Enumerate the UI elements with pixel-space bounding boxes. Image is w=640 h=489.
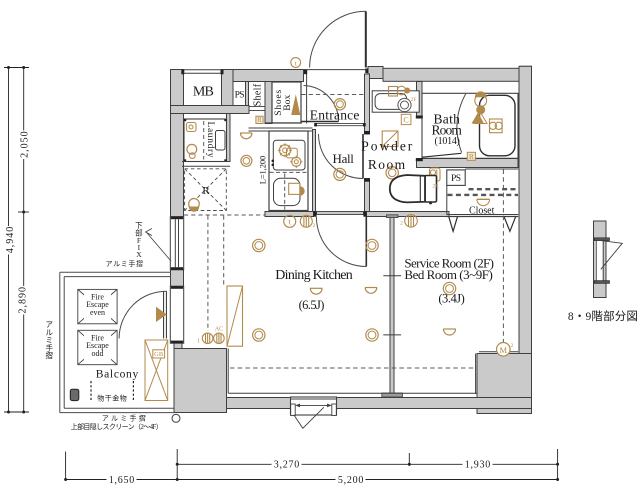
svg-text:Laundry: Laundry xyxy=(205,122,215,158)
svg-text:2: 2 xyxy=(400,221,403,227)
svg-text:t: t xyxy=(295,59,297,67)
svg-text:Closet: Closet xyxy=(469,205,495,216)
svg-text:2,890: 2,890 xyxy=(18,287,29,314)
svg-text:(6.5J): (6.5J) xyxy=(299,298,325,312)
svg-text:Room: Room xyxy=(368,157,406,172)
svg-text:R: R xyxy=(257,116,262,124)
svg-text:Dining Kitchen: Dining Kitchen xyxy=(275,268,353,283)
svg-text:R: R xyxy=(469,152,474,161)
svg-text:AC: AC xyxy=(215,327,223,333)
svg-text:Balcony: Balcony xyxy=(96,368,139,380)
svg-text:1: 1 xyxy=(197,339,200,345)
svg-text:Bed Room (3~9F): Bed Room (3~9F) xyxy=(404,267,492,282)
svg-text:Entrance: Entrance xyxy=(310,108,360,123)
svg-text:1,930: 1,930 xyxy=(465,460,491,471)
svg-text:(1014): (1014) xyxy=(435,136,460,147)
svg-text:5,200: 5,200 xyxy=(338,475,364,486)
svg-text:PS: PS xyxy=(235,91,245,101)
svg-text:上部目隠しスクリーン（2〜4F）: 上部目隠しスクリーン（2〜4F） xyxy=(71,422,163,431)
svg-text:3,270: 3,270 xyxy=(274,460,300,471)
svg-text:GB: GB xyxy=(154,351,164,358)
svg-text:even: even xyxy=(90,308,105,317)
svg-text:2,050: 2,050 xyxy=(19,131,30,158)
svg-text:(3.4J): (3.4J) xyxy=(438,292,465,306)
svg-text:2: 2 xyxy=(313,223,316,229)
svg-text:8・9階部分図: 8・9階部分図 xyxy=(568,309,638,323)
svg-text:2F: 2F xyxy=(411,97,417,103)
svg-text:Hall: Hall xyxy=(333,151,355,166)
svg-text:Box: Box xyxy=(283,95,293,111)
svg-text:M: M xyxy=(500,345,508,355)
svg-text:odd: odd xyxy=(92,349,104,358)
svg-text:PS: PS xyxy=(451,174,461,184)
svg-text:C: C xyxy=(403,115,408,124)
svg-text:アルミ手摺: アルミ手摺 xyxy=(102,414,146,423)
svg-text:X: X xyxy=(136,250,142,259)
svg-text:R: R xyxy=(202,185,210,197)
svg-text:L=1,200: L=1,200 xyxy=(257,156,267,185)
svg-text:4,940: 4,940 xyxy=(5,227,16,254)
svg-text:物干金物: 物干金物 xyxy=(97,393,127,402)
svg-text:MB: MB xyxy=(193,85,214,100)
svg-text:2: 2 xyxy=(511,343,514,349)
svg-text:Shelf: Shelf xyxy=(252,83,263,106)
svg-text:2E: 2E xyxy=(433,183,440,189)
svg-text:アルミ手摺: アルミ手摺 xyxy=(106,259,144,268)
svg-text:1,650: 1,650 xyxy=(109,475,135,486)
svg-text:摺: 摺 xyxy=(46,350,54,360)
